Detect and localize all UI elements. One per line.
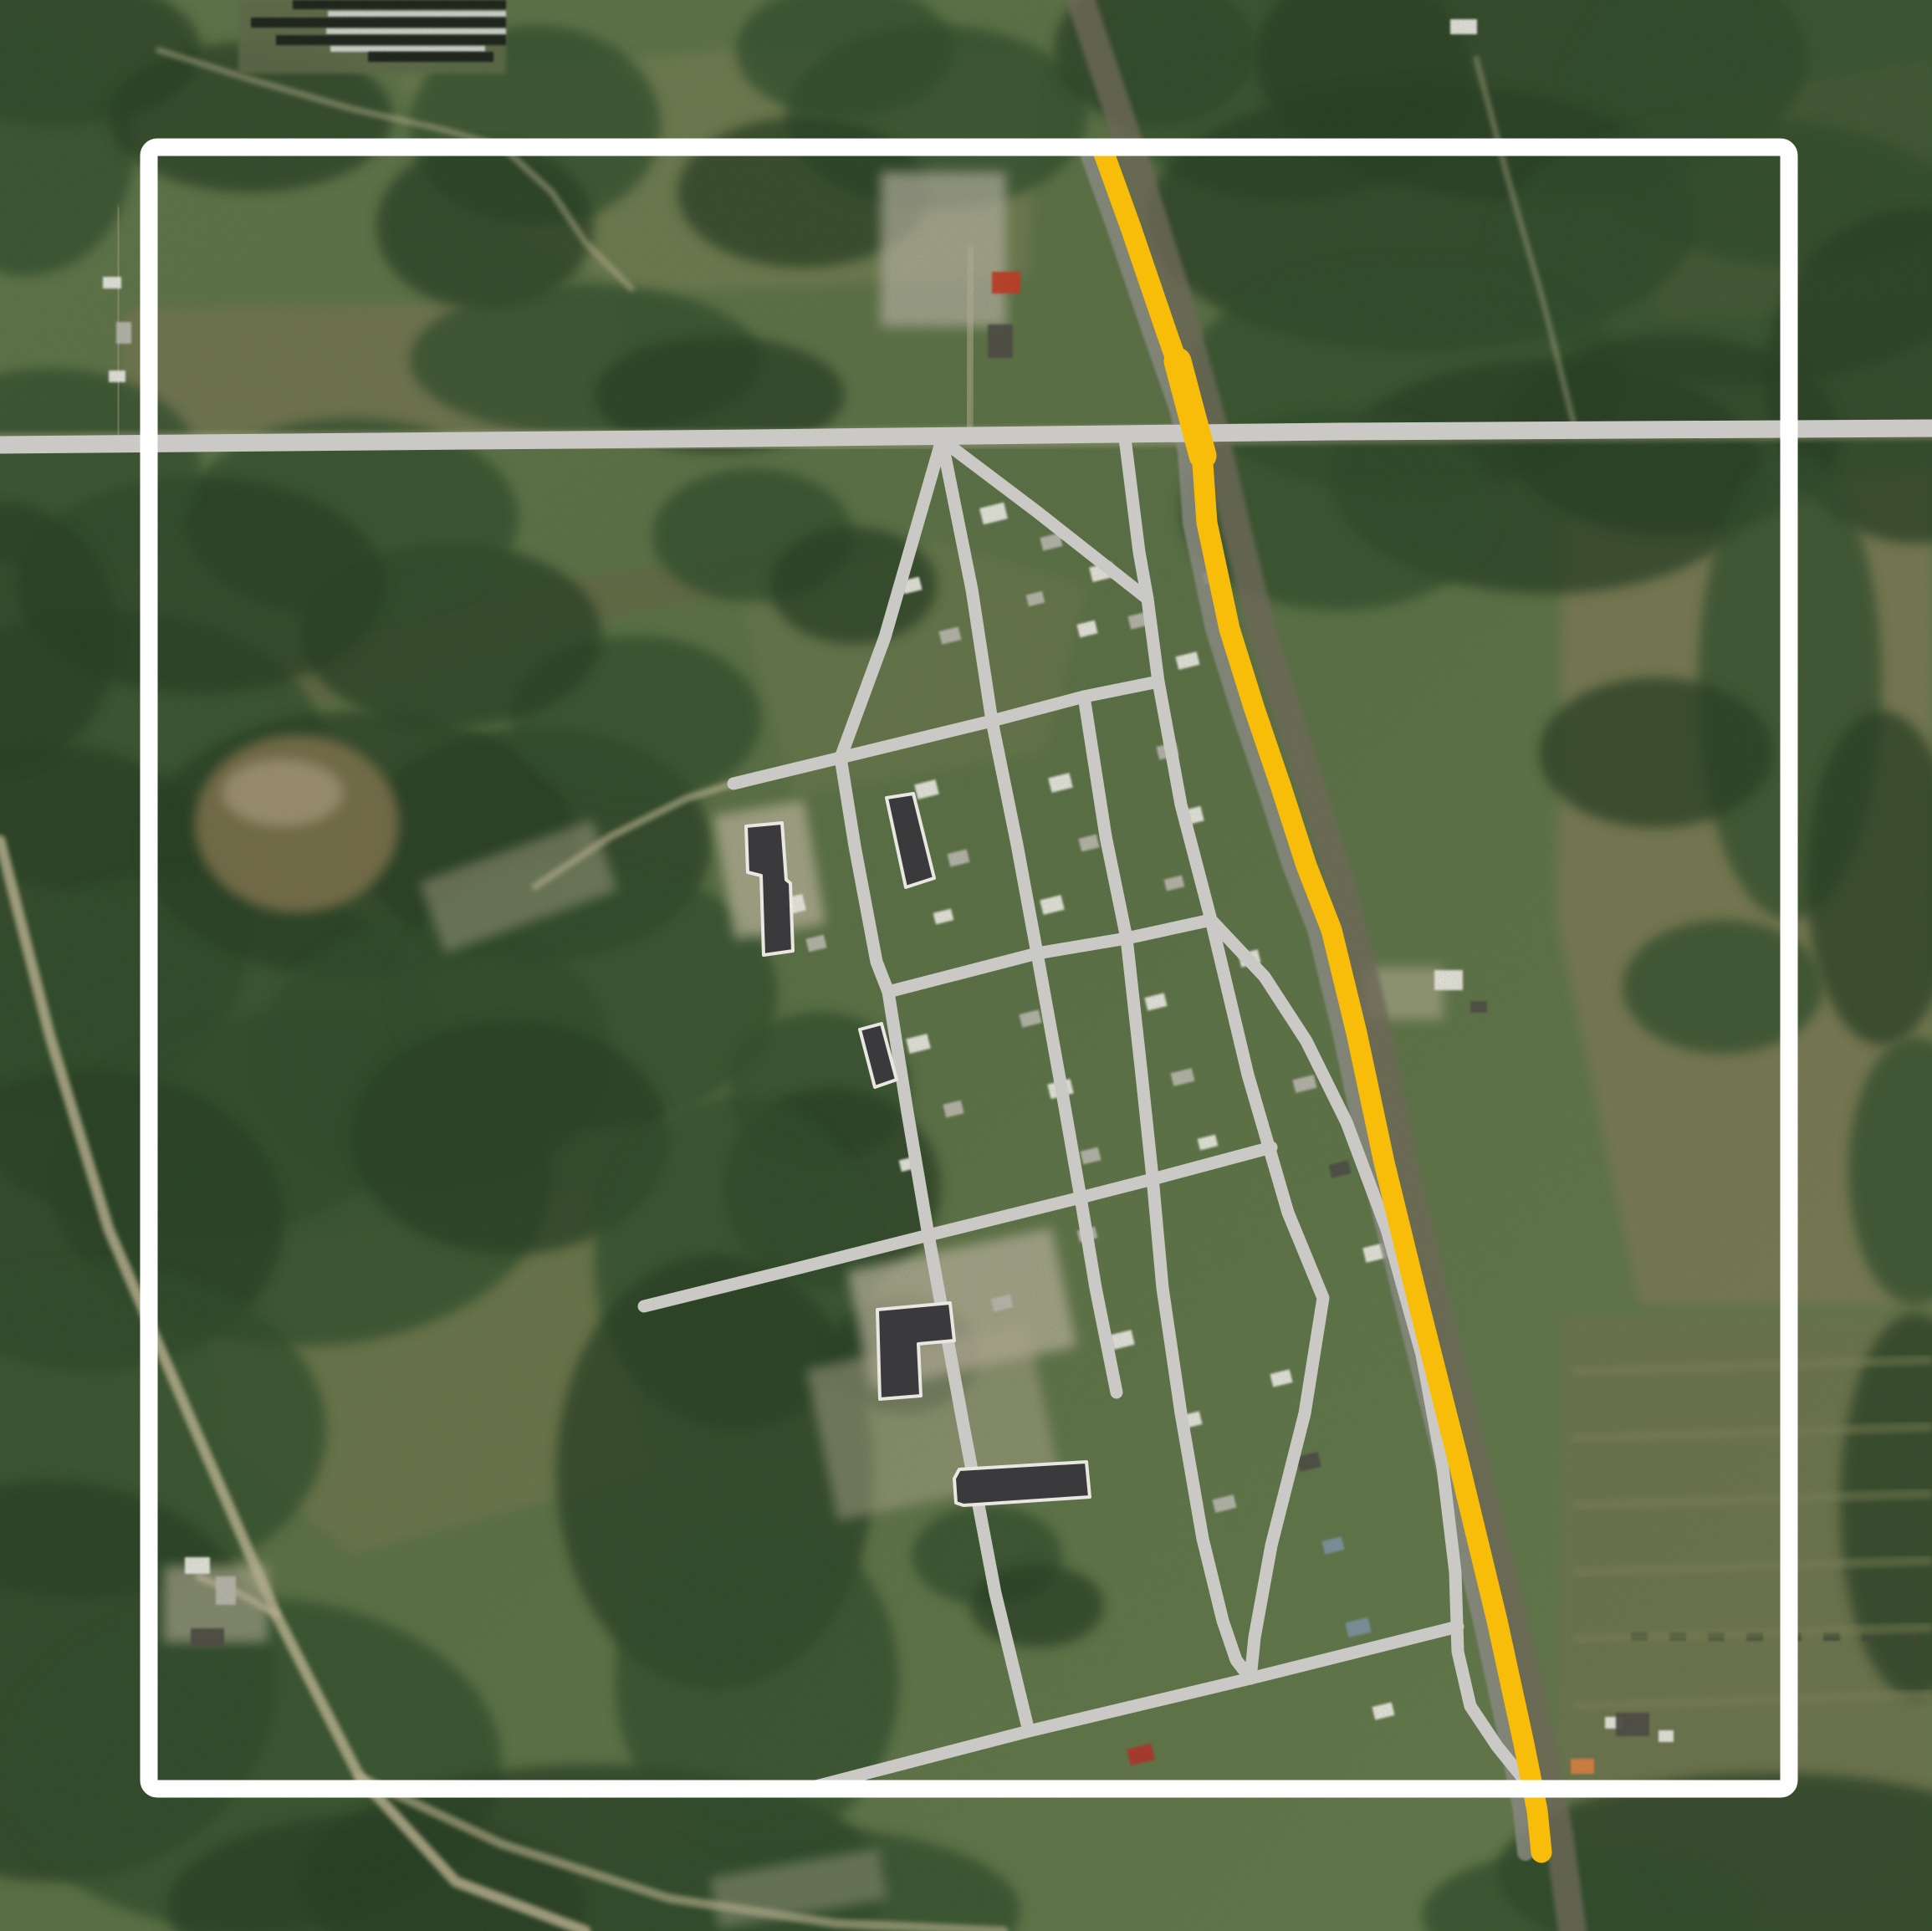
satellite-map[interactable]	[0, 0, 1932, 1931]
satellite-map-canvas[interactable]	[0, 0, 1932, 1931]
building-footprint-5	[954, 1462, 1090, 1505]
